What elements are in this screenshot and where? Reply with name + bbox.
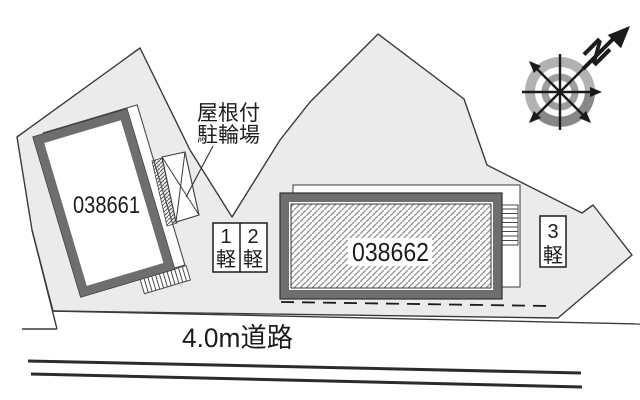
road-line-upper	[28, 361, 581, 373]
parking-spot-3: 3 軽	[540, 216, 566, 267]
compass-rose: N	[522, 19, 637, 130]
parking-spot-3-number: 3	[547, 221, 558, 243]
road-line-lower	[31, 374, 582, 387]
road-label: 4.0m道路	[182, 323, 293, 353]
parking-spot-2-number: 2	[247, 226, 258, 248]
building-038662-stairs	[502, 205, 518, 245]
site-plan-canvas: 038661 屋根付 駐輪場 1 軽 2 軽	[0, 0, 640, 400]
road: 4.0m道路	[28, 323, 582, 387]
compass-arrowhead-e	[590, 87, 602, 97]
parking-spot-3-class: 軽	[543, 244, 563, 267]
building-038661-label: 038661	[73, 192, 140, 219]
bicycle-shed-label-line2: 駐輪場	[197, 124, 260, 147]
parking-spots-1-2: 1 軽 2 軽	[213, 223, 267, 272]
building-038662-label: 038662	[352, 237, 429, 267]
parking-spot-2-class: 軽	[243, 248, 263, 271]
parking-spot-1-class: 軽	[216, 248, 236, 271]
parking-spot-1-number: 1	[220, 226, 231, 248]
site-plan-drawing: 038661 屋根付 駐輪場 1 軽 2 軽	[0, 0, 640, 400]
bicycle-shed-label-line1: 屋根付	[197, 102, 260, 125]
